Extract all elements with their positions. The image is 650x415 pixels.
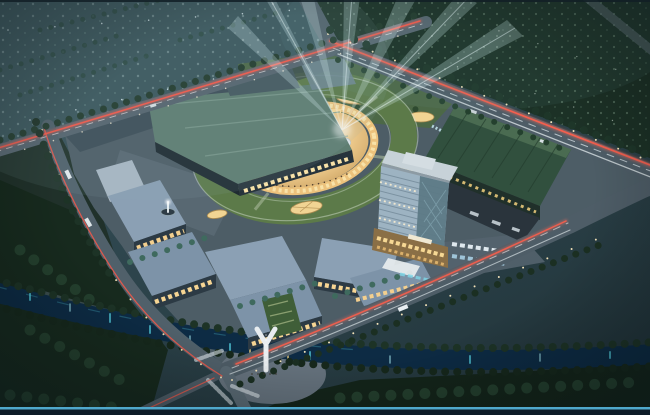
bottom-frame-bar (0, 410, 650, 415)
rendering-canvas (0, 0, 650, 415)
top-frame-line (0, 0, 650, 2)
architectural-rendering-figure: Night-time aerial architectural renderin… (0, 0, 650, 415)
bottom-accent-line (0, 407, 650, 410)
vignette (0, 0, 650, 415)
